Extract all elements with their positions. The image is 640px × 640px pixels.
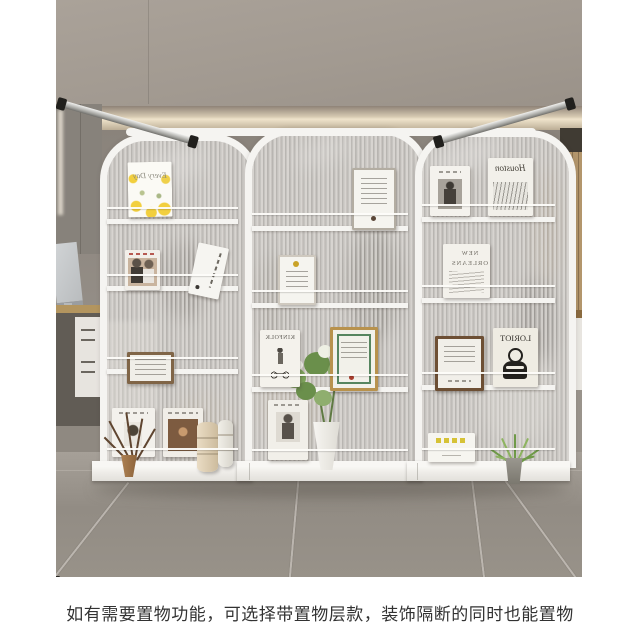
certificate-text (361, 178, 387, 204)
shelf-wire (107, 448, 238, 450)
magazine-masthead (129, 253, 156, 255)
box-line (442, 455, 461, 457)
plant-leaf (514, 434, 516, 460)
certificate-text (444, 346, 475, 366)
shelf-wire (422, 372, 555, 374)
magazine-photo (276, 412, 300, 442)
magazine-new-orleans: NEW ORLEANS (443, 244, 490, 298)
magazine-houston: Houston (488, 158, 533, 216)
plinth-seam (249, 463, 250, 480)
shelf-wire (107, 274, 238, 276)
certificate-brown-frame (435, 336, 484, 391)
gold-crest (293, 261, 299, 267)
white-cover-magazine (430, 166, 470, 216)
certificate-seal (371, 216, 376, 221)
certificate-text (341, 342, 367, 358)
cartoon-arms (506, 366, 524, 369)
magazine-masthead (274, 404, 302, 406)
magazine-masthead (119, 412, 148, 414)
plinth-seam (417, 463, 418, 480)
sketch-illustration (449, 271, 484, 293)
shelf-bar (252, 303, 408, 308)
cover-figure (276, 348, 284, 366)
frame-text-lines (135, 359, 166, 377)
locker-vent (81, 339, 95, 341)
divider-floor-shadow (94, 478, 568, 498)
base-plinth-right (407, 461, 570, 481)
shelf-wire (107, 357, 238, 359)
shelf-wire (252, 290, 408, 292)
shelf-wire (252, 374, 408, 376)
shelf-wire (107, 207, 238, 209)
left-desk (56, 305, 102, 313)
bouquet-foliage (314, 390, 332, 406)
shelf-wire (422, 448, 555, 450)
yellow-label (436, 438, 467, 443)
shelf-bar (422, 217, 555, 222)
left-light-slit (58, 110, 63, 215)
white-ceramic-vase (218, 420, 233, 467)
magazine-photo (168, 419, 198, 451)
book-every-day: Every Day (128, 162, 173, 218)
left-locker-cabinet (75, 317, 102, 397)
magazine-masthead (439, 171, 461, 173)
certificate-text-line (448, 380, 471, 382)
magazine-cover-photo (128, 258, 157, 286)
beige-ceramic-vase (197, 422, 218, 472)
certificate-frame (352, 168, 396, 230)
locker-vent (81, 361, 95, 363)
shelf-bar (422, 298, 555, 303)
product-image[interactable]: Every Day KINFOLK (56, 0, 582, 577)
magazine-kinfolk: KINFOLK (260, 330, 300, 387)
certificate-text (286, 271, 308, 289)
locker-vent (81, 371, 95, 373)
shelf-wire (422, 285, 555, 287)
cartoon-body (503, 361, 527, 379)
shelf-wire (252, 449, 408, 451)
certificate-green-border (330, 327, 378, 391)
certificate-frame-gold-crest (278, 255, 316, 305)
magazine-masthead (168, 412, 198, 414)
caption-text: 如有需要置物功能，可选择带置物层款，装饰隔断的同时也能置物 (0, 600, 640, 625)
ceiling-seam (148, 0, 149, 104)
portrait-magazine (268, 400, 308, 460)
ceiling (56, 0, 582, 106)
left-panel-seam (80, 104, 81, 254)
shelf-wire (422, 204, 555, 206)
shelf-bar (107, 219, 238, 224)
shelf-wire (252, 213, 408, 215)
book-loriot: LORIOT (493, 328, 538, 387)
locker-vent (81, 329, 95, 331)
script-text-decoration (208, 253, 221, 288)
fashion-magazine (125, 250, 160, 290)
cover-dot (195, 285, 200, 290)
